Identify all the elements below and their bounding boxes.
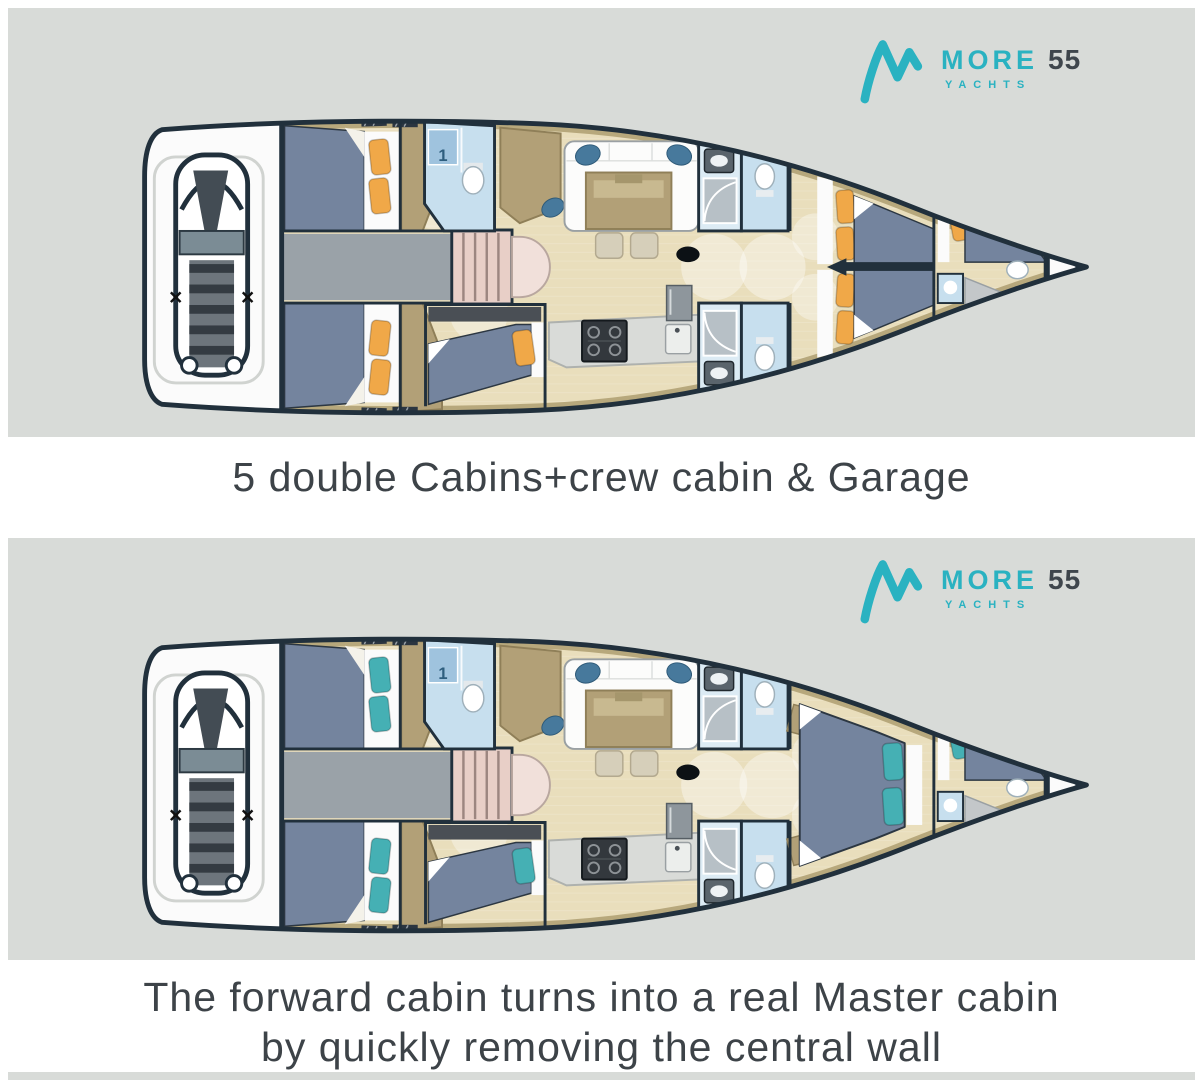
bathroom-mid-bottom — [699, 821, 788, 909]
salon-stool — [631, 751, 658, 776]
toilet — [1007, 261, 1028, 279]
pillow — [368, 138, 391, 175]
pillow — [882, 742, 904, 780]
yacht-floor-plan-master: 1 — [131, 634, 1103, 936]
mountain-m-icon — [857, 36, 935, 106]
aft-cabin-bottom — [285, 821, 442, 930]
toilet — [755, 164, 774, 189]
yacht-floor-plan-5-cabins: 1 — [131, 116, 1103, 418]
brochure-page: MORE 55 YACHTS 1 5 double Cabins+crew ca… — [0, 0, 1203, 1080]
brand-name: MORE — [941, 47, 1038, 74]
pillow — [368, 877, 391, 914]
pillow — [512, 329, 536, 366]
shower-label: 1 — [438, 664, 447, 683]
pillow — [836, 226, 856, 260]
yacht-floor-plan-svg: 1 — [131, 116, 1103, 418]
dinghy — [171, 673, 253, 893]
aft-cabin-top — [285, 640, 442, 749]
caption-5-cabins: 5 double Cabins+crew cabin & Garage — [0, 452, 1203, 502]
brand-subtitle: YACHTS — [945, 600, 1081, 611]
pillow — [882, 787, 904, 825]
companionway-stairs — [452, 230, 550, 304]
shower — [704, 696, 737, 741]
brand-logo: MORE 55 YACHTS — [857, 556, 1107, 634]
mast — [676, 765, 699, 781]
shower — [704, 311, 737, 356]
pillow — [836, 189, 856, 223]
yacht-floor-plan-svg: 1 — [131, 634, 1103, 936]
aft-cabin-bottom — [285, 303, 442, 412]
pillow — [512, 847, 536, 884]
toilet — [755, 863, 774, 888]
shower — [704, 178, 737, 223]
bow-locker — [1049, 245, 1078, 290]
shower — [704, 829, 737, 874]
pillow — [368, 656, 391, 693]
salon-stool — [631, 233, 658, 258]
bathroom-mid-top — [699, 661, 788, 749]
pillow — [368, 838, 391, 875]
shower-label: 1 — [438, 146, 447, 165]
toilet — [1007, 779, 1028, 797]
bow-locker — [1049, 763, 1078, 808]
pillow — [368, 177, 391, 214]
bathroom-mid-bottom — [699, 303, 788, 391]
nav-station — [500, 646, 567, 741]
caption-master: The forward cabin turns into a real Mast… — [0, 972, 1203, 1072]
toilet — [755, 682, 774, 707]
mountain-m-icon — [857, 556, 935, 626]
caption-line: The forward cabin turns into a real Mast… — [0, 972, 1203, 1022]
salon-stool — [596, 233, 623, 258]
toilet — [755, 345, 774, 370]
brand-wordmark: MORE 55 YACHTS — [941, 566, 1081, 611]
nav-station — [500, 128, 567, 223]
dinghy — [171, 155, 253, 375]
pillow — [368, 320, 391, 357]
aft-bathroom: 1 — [425, 122, 495, 231]
mast — [676, 247, 699, 263]
page-edge-strip — [8, 1072, 1195, 1080]
brand-model: 55 — [1048, 566, 1081, 594]
brand-logo: MORE 55 YACHTS — [857, 36, 1107, 114]
layout-panel-5-cabins: MORE 55 YACHTS 1 — [8, 8, 1195, 437]
bathroom-mid-top — [699, 143, 788, 231]
brand-subtitle: YACHTS — [945, 80, 1081, 91]
brand-name: MORE — [941, 567, 1038, 594]
companionway-stairs — [452, 748, 550, 822]
aft-cabin-top — [285, 122, 442, 231]
pillow — [836, 273, 856, 307]
brand-wordmark: MORE 55 YACHTS — [941, 46, 1081, 91]
pillow — [368, 359, 391, 396]
brand-model: 55 — [1048, 46, 1081, 74]
layout-panel-master: MORE 55 YACHTS 1 — [8, 538, 1195, 960]
pillow — [368, 695, 391, 732]
pillow — [836, 310, 856, 344]
aft-bathroom: 1 — [425, 640, 495, 749]
caption-line: by quickly removing the central wall — [0, 1022, 1203, 1072]
caption-line: 5 double Cabins+crew cabin & Garage — [0, 452, 1203, 502]
salon-stool — [596, 751, 623, 776]
